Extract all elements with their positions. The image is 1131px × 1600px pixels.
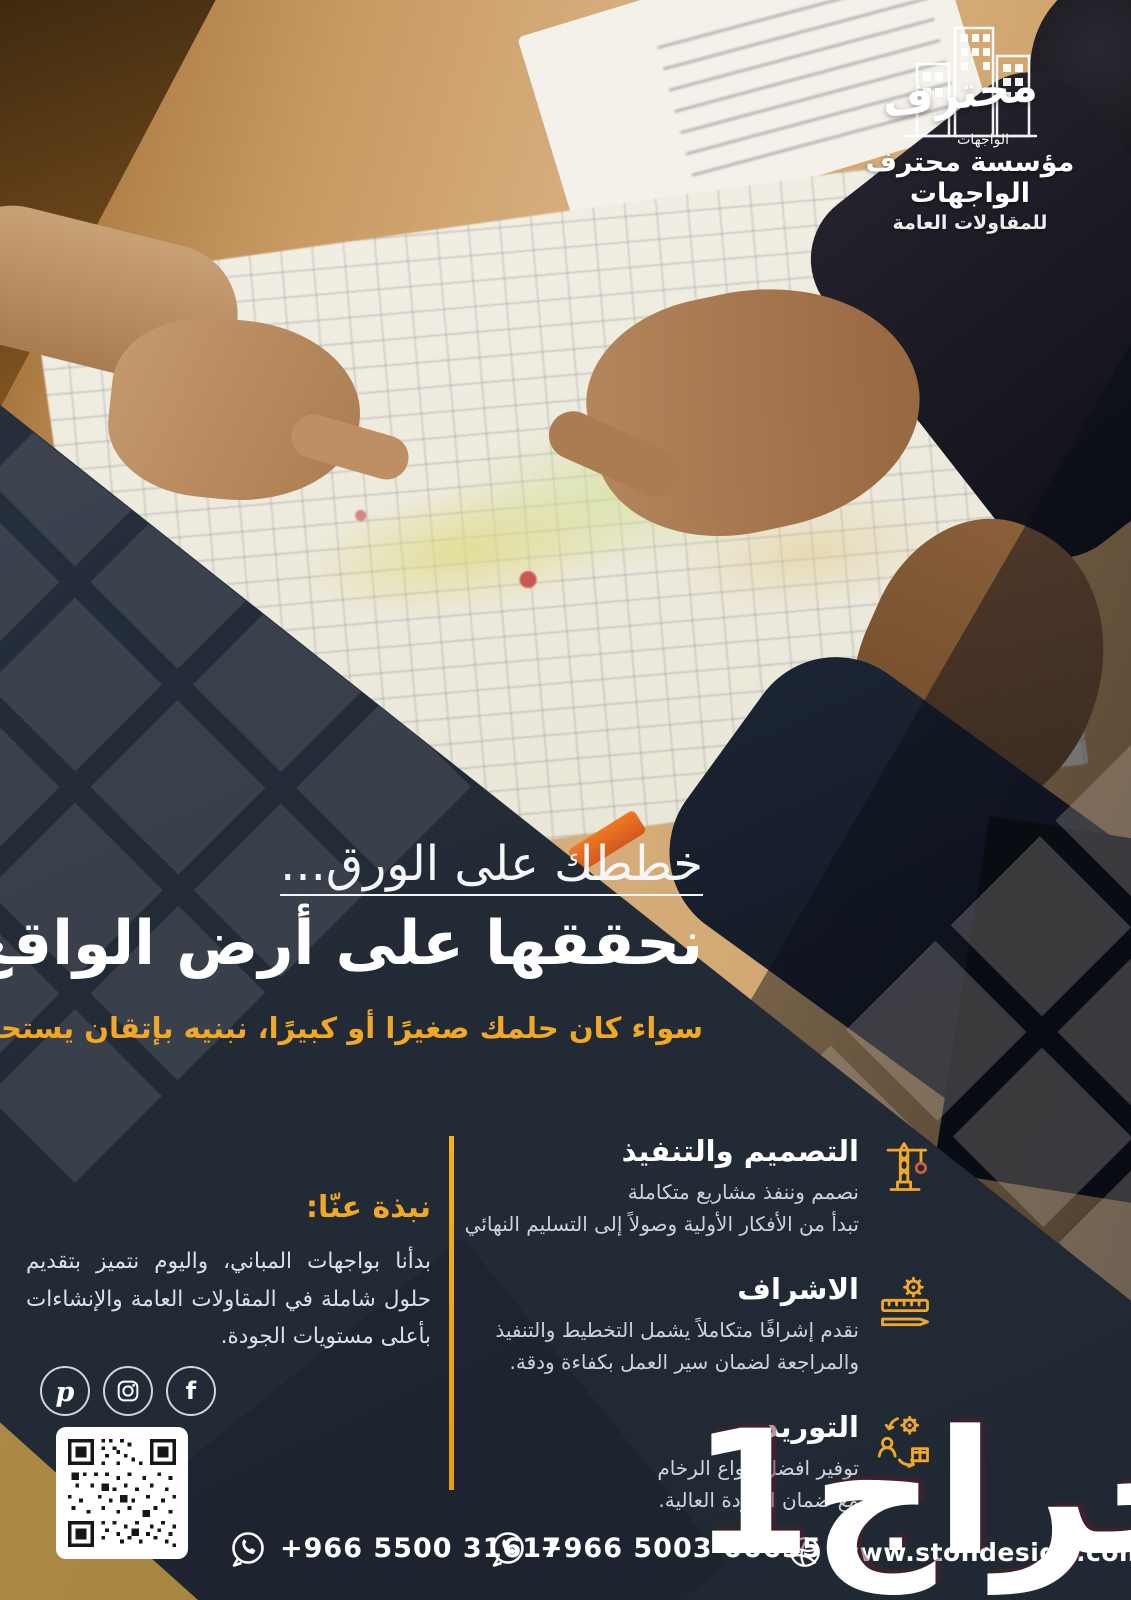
haraj-watermark: حراج1 [692,1408,1131,1580]
hero-text: خططك على الورق... نحققها على أرض الواقع.… [0,836,703,1045]
pinterest-icon[interactable]: p [40,1366,90,1416]
headline-line1: خططك على الورق... [0,836,703,892]
instagram-icon[interactable] [103,1366,153,1416]
about-body: بدأنا بواجهات المباني، واليوم نتميز بتقد… [26,1243,431,1356]
service-title: الاشراف [495,1272,859,1306]
service-text: الاشراف نقدم إشرافًا متكاملاً يشمل التخط… [495,1272,859,1378]
crane-icon [875,1136,935,1198]
logo-calligraphy-sub: الواجهات [957,132,1009,148]
organization-name: مؤسسة محترف الواجهات [845,147,1095,209]
qr-code[interactable] [56,1427,188,1559]
social-icons-row: p f [40,1366,216,1416]
headline-line2: نحققها على أرض الواقع. [0,908,703,979]
brand-logo: محترف الواجهات مؤسسة محترف الواجهات للمق… [845,18,1095,234]
about-title: نبذة عنّا: [26,1190,431,1225]
service-text: التصميم والتنفيذ نصمم وننفذ مشاريع متكام… [465,1134,859,1240]
construction-poster: محترف الواجهات مؤسسة محترف الواجهات للمق… [0,0,1131,1600]
hero-subline: سواء كان حلمك صغيرًا أو كبيرًا، نبنيه بإ… [0,1011,703,1045]
service-title: التصميم والتنفيذ [465,1134,859,1168]
about-section: نبذة عنّا: بدأنا بواجهات المباني، واليوم… [26,1190,431,1377]
whatsapp-icon [488,1528,528,1568]
facebook-icon[interactable]: f [166,1366,216,1416]
organization-tagline: للمقاولات العامة [845,212,1095,234]
service-description: نقدم إشرافًا متكاملاً يشمل التخطيط والتن… [495,1314,859,1378]
service-description: نصمم وننفذ مشاريع متكاملة تبدأ من الأفكا… [465,1176,859,1240]
whatsapp-icon [228,1528,268,1568]
supervision-icon [875,1274,935,1336]
